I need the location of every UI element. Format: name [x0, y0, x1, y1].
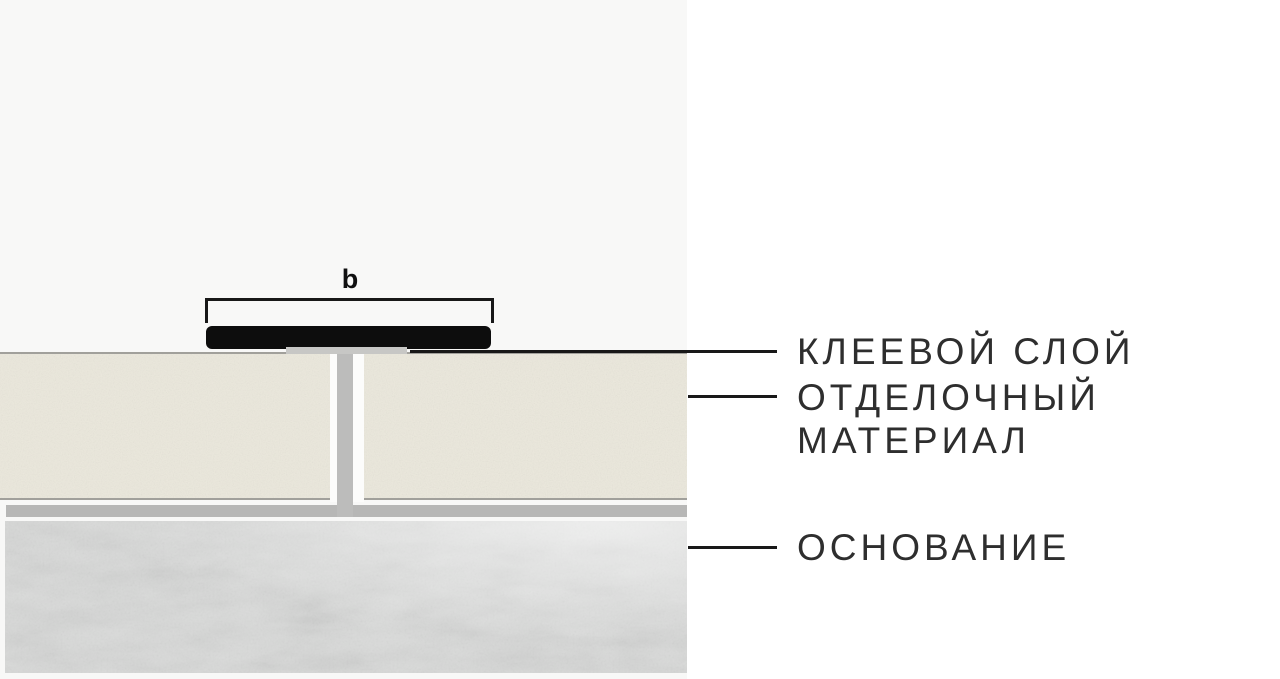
concrete-texture	[5, 521, 687, 673]
dimension-bracket	[205, 298, 494, 323]
callout-finishing-material-line1: ОТДЕЛОЧНЫЙ	[797, 376, 1100, 419]
callout-base: ОСНОВАНИЕ	[797, 530, 1070, 566]
leader-line-adhesive-layer	[410, 350, 777, 353]
tile-right-finishing-material	[362, 352, 687, 500]
tile-texture	[364, 354, 687, 498]
dimension-label: b	[205, 265, 495, 293]
illustration-canvas: b	[0, 0, 1280, 679]
adhesive-strip	[286, 347, 407, 354]
cross-section-panel: b	[0, 0, 687, 679]
tile-texture	[0, 354, 330, 498]
callout-finishing-material: ОТДЕЛОЧНЫЙ МАТЕРИАЛ	[797, 376, 1100, 462]
callout-adhesive-layer: КЛЕЕВОЙ СЛОЙ	[797, 334, 1134, 370]
profile-bar	[206, 326, 491, 349]
tile-left-finishing-material	[0, 352, 332, 500]
leader-line-base	[688, 546, 777, 549]
callout-finishing-material-line2: МАТЕРИАЛ	[797, 419, 1100, 462]
grout-joint	[337, 352, 353, 517]
substrate-concrete	[5, 521, 687, 673]
leader-line-finishing-material	[688, 395, 777, 398]
